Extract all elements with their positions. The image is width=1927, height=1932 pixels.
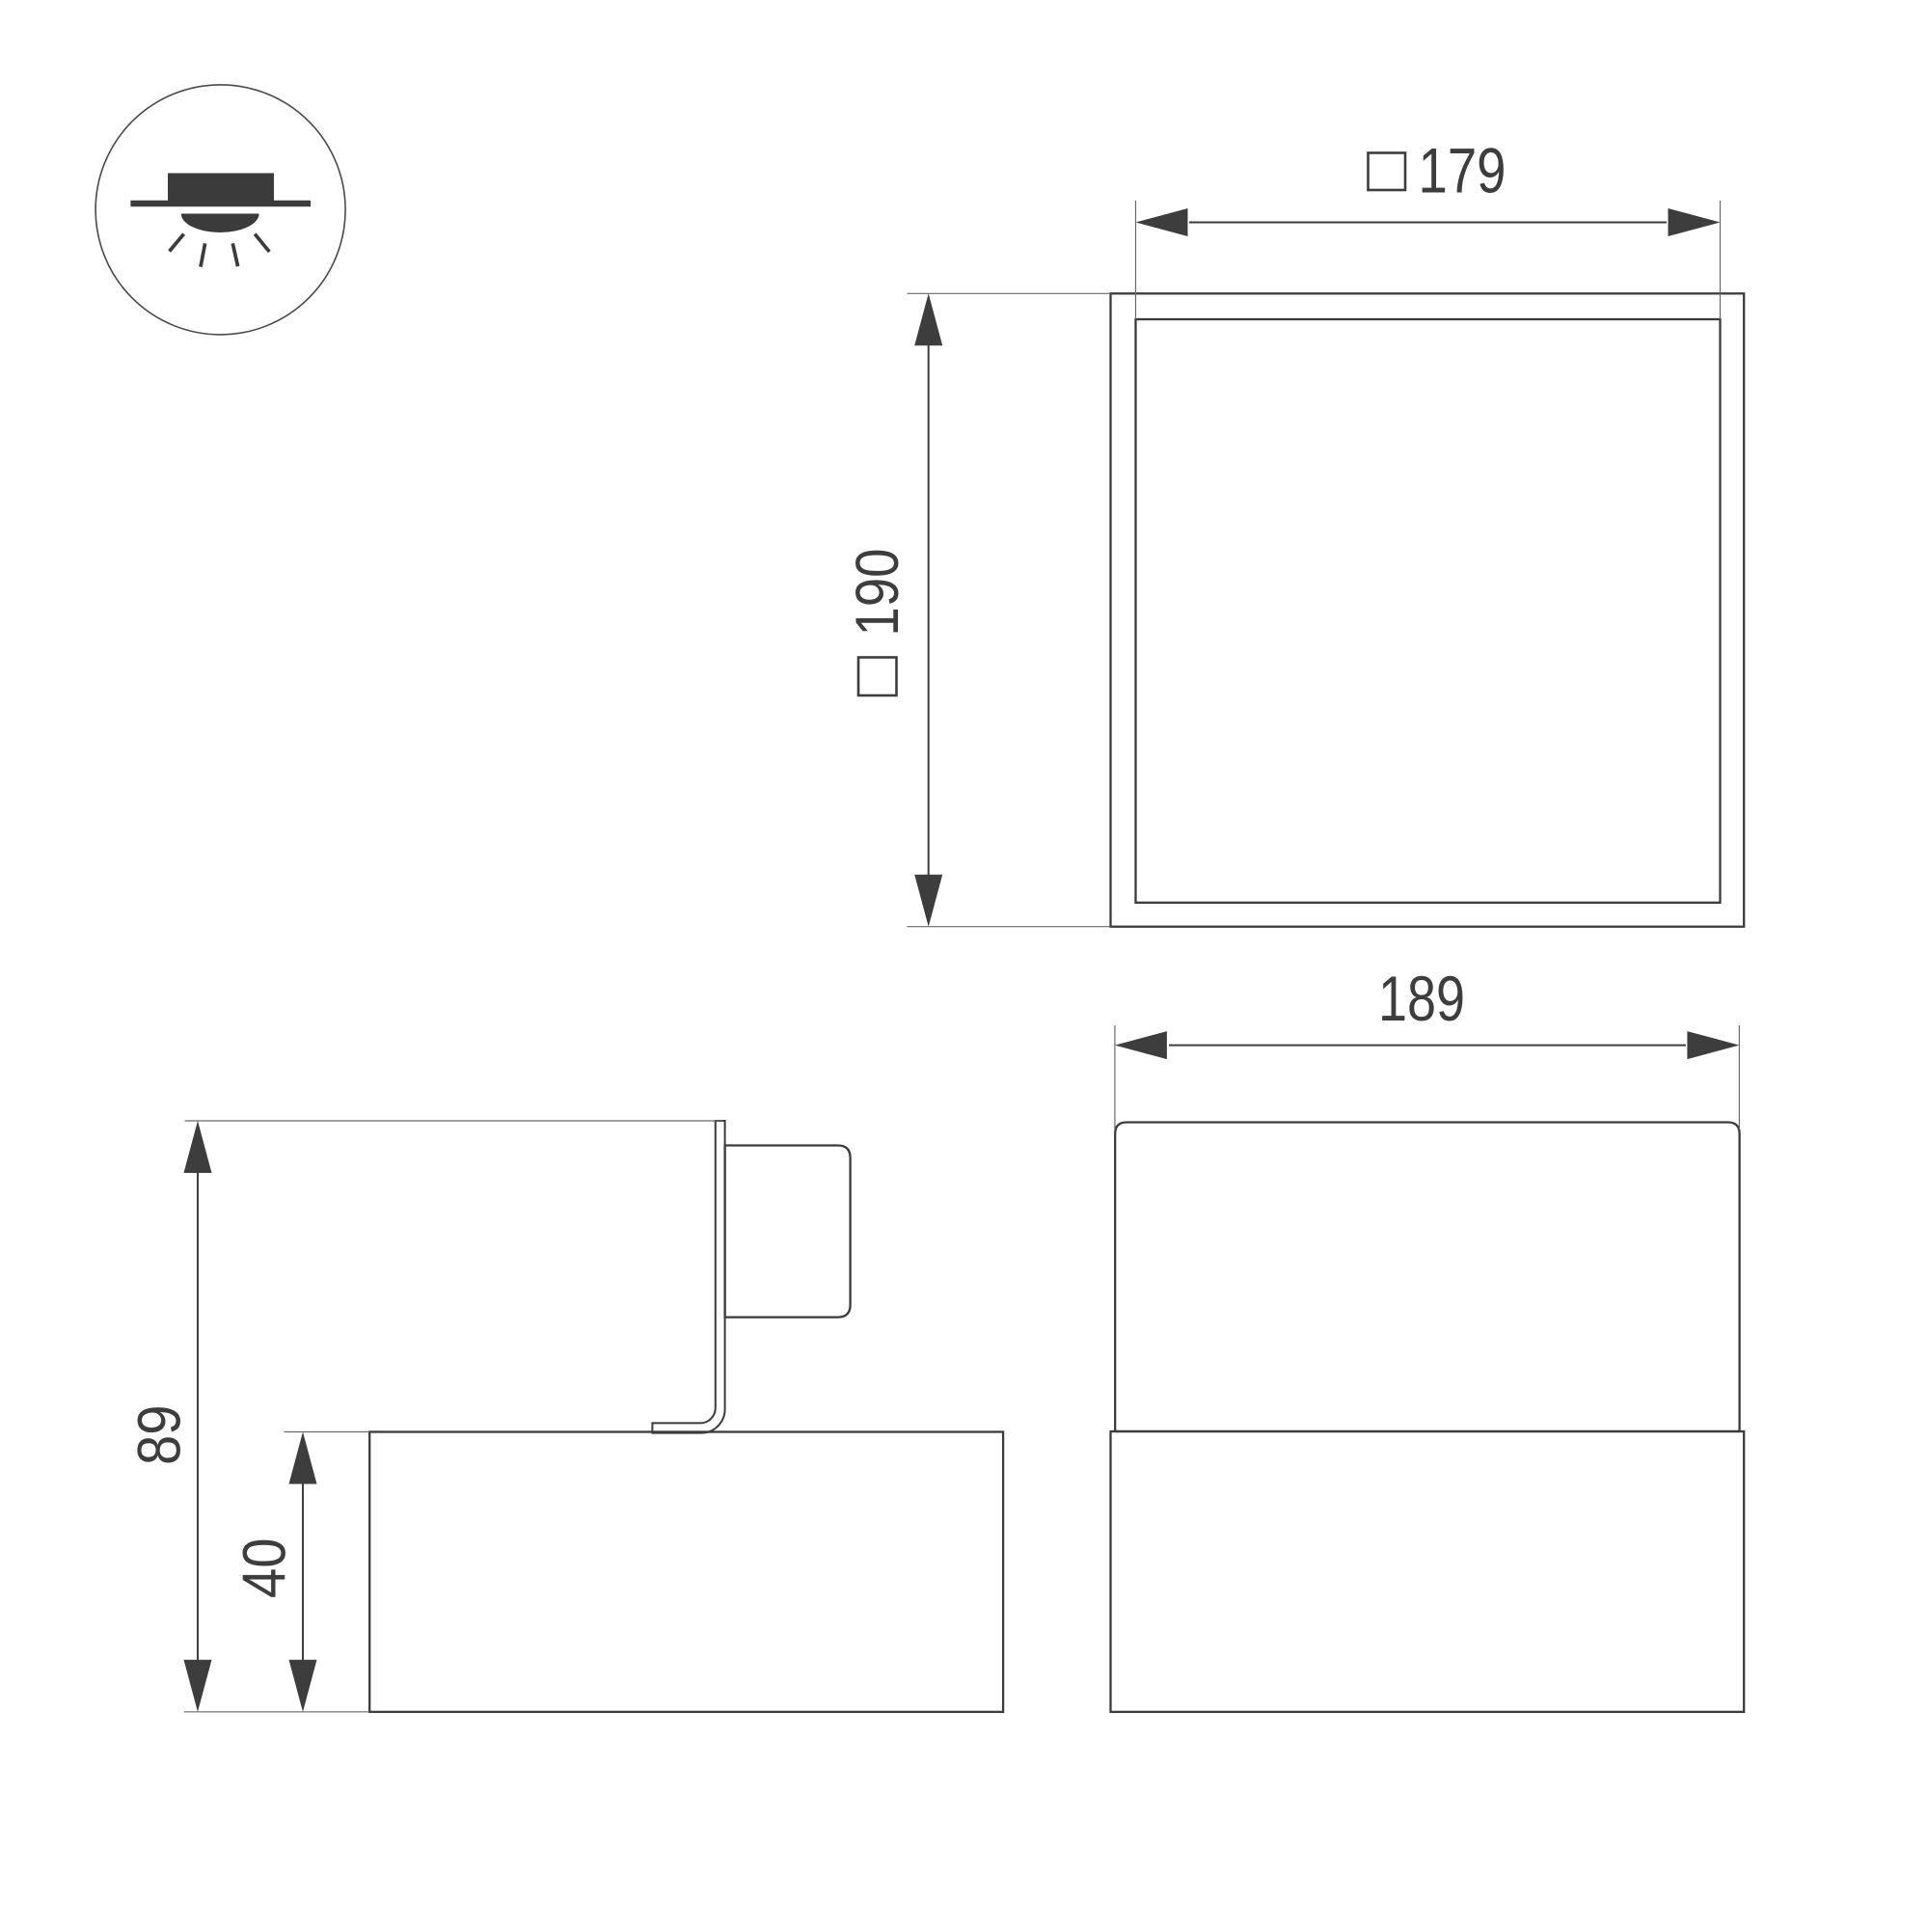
svg-text:189: 189 (1378, 963, 1465, 1034)
svg-text:190: 190 (844, 549, 911, 637)
svg-text:89: 89 (126, 1405, 194, 1466)
svg-text:179: 179 (1419, 135, 1506, 206)
svg-text:40: 40 (231, 1538, 299, 1599)
